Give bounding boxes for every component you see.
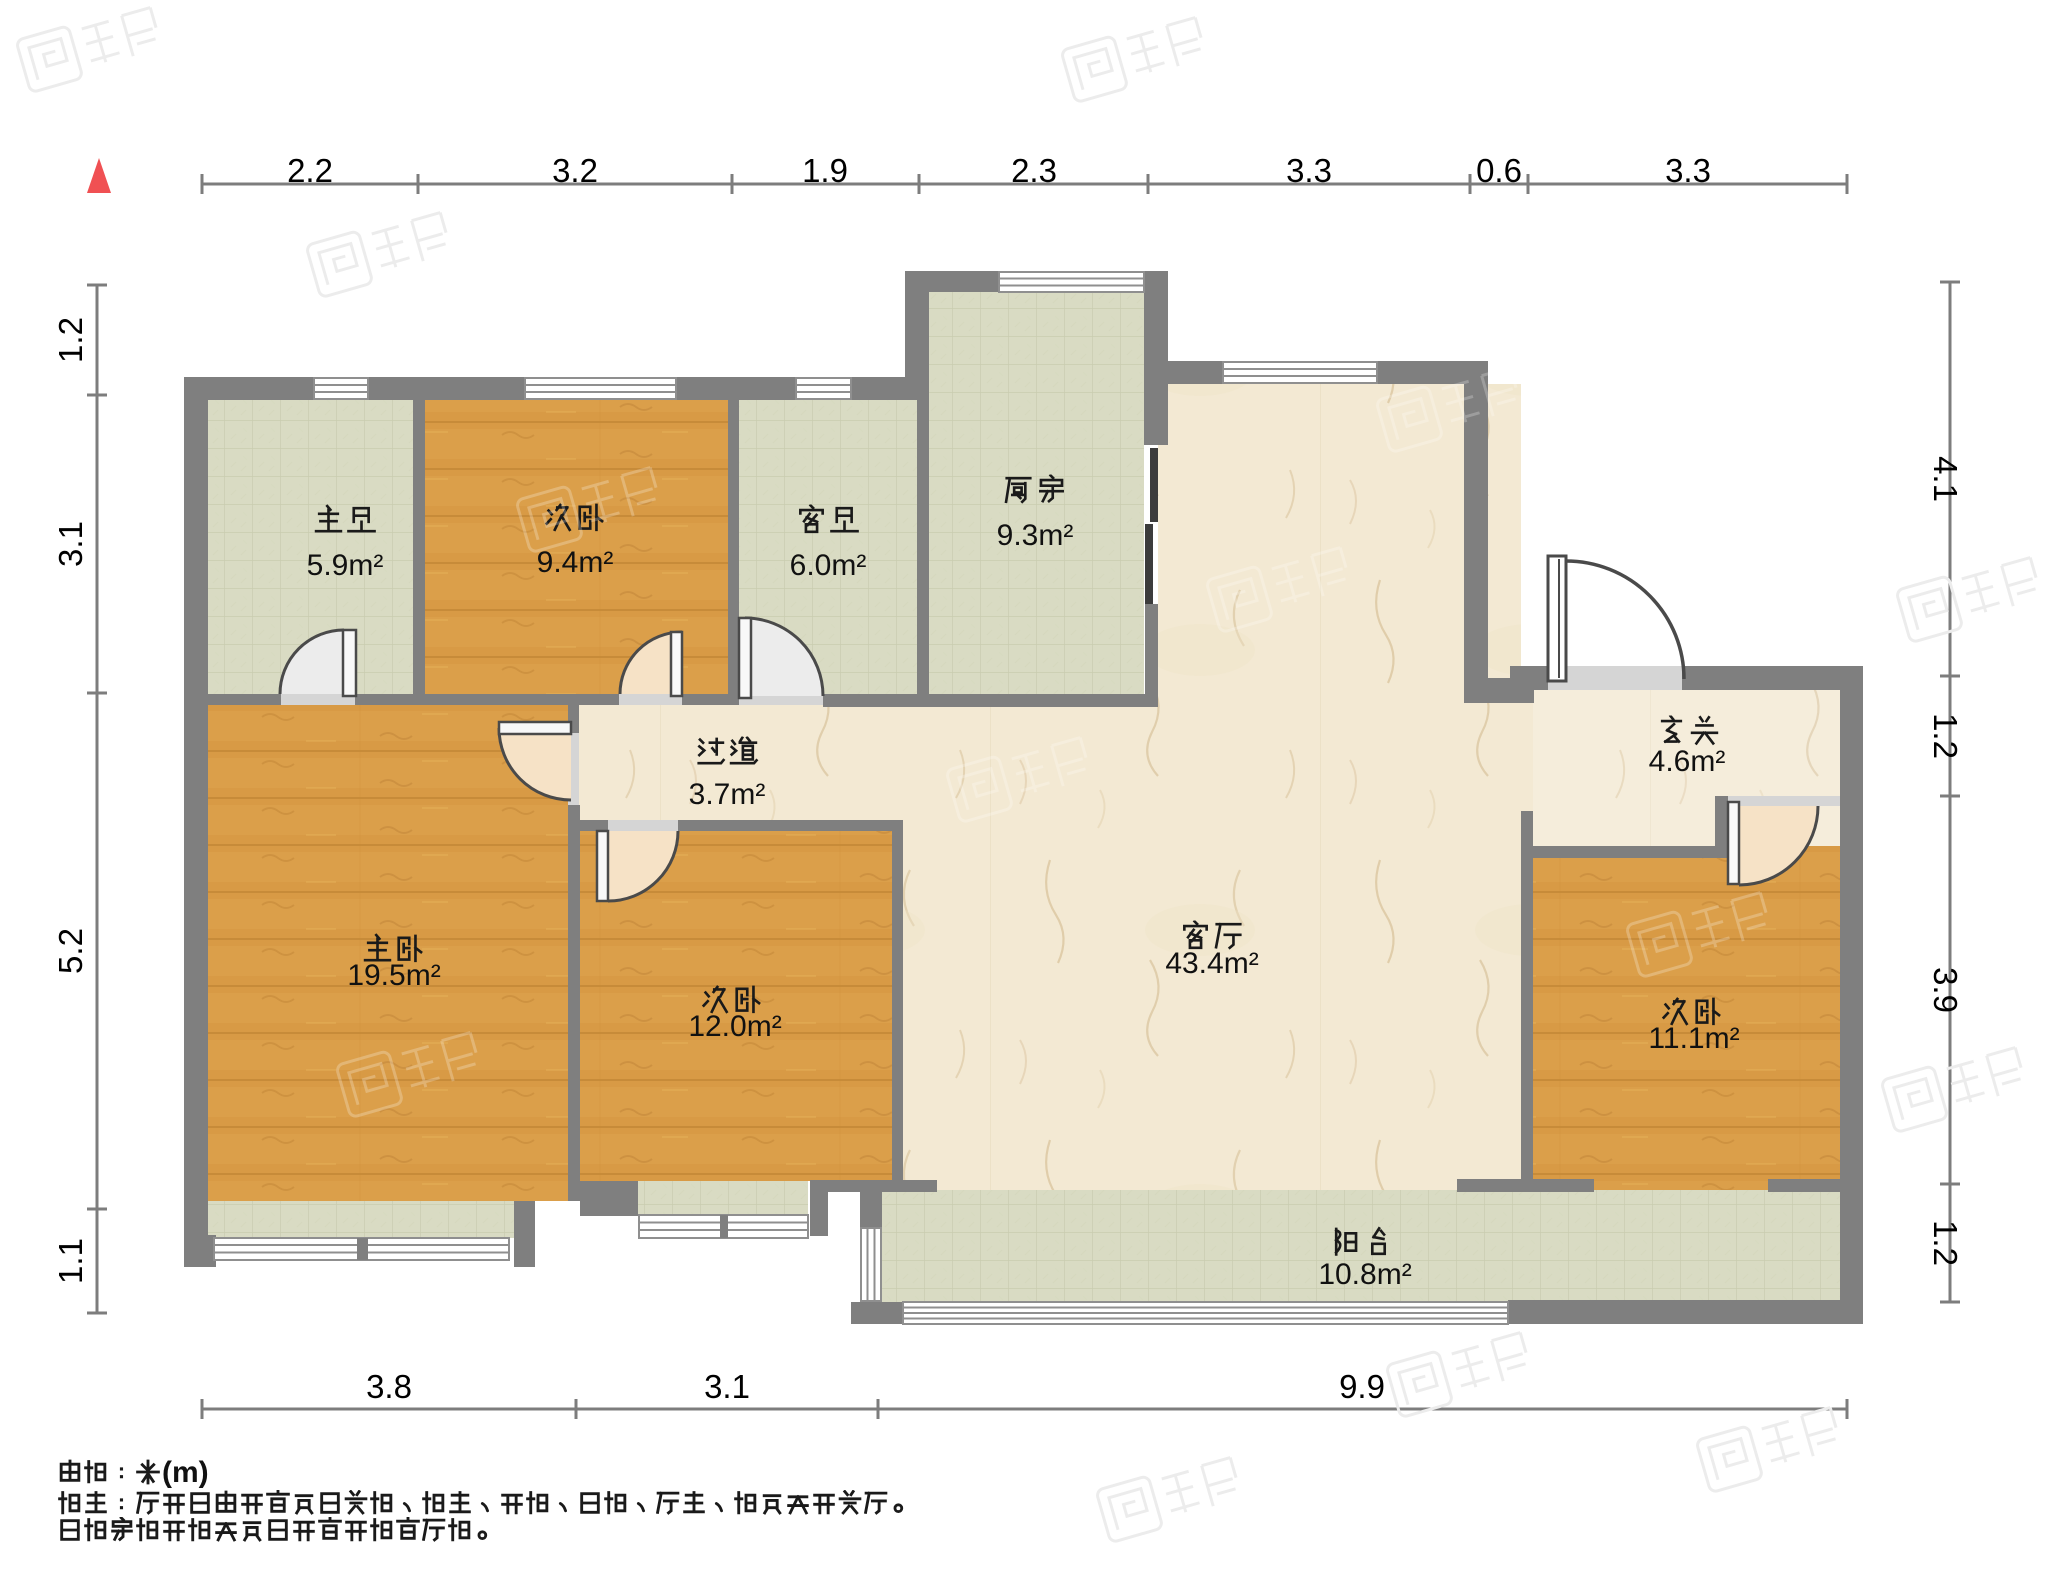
svg-text:2.3: 2.3	[1011, 152, 1057, 189]
svg-text:3.7m²: 3.7m²	[689, 778, 766, 811]
svg-text:1.2: 1.2	[1927, 1220, 1964, 1266]
svg-text:3.9: 3.9	[1927, 967, 1964, 1013]
svg-text:4.1: 4.1	[1927, 456, 1964, 502]
svg-text:2.2: 2.2	[287, 152, 333, 189]
svg-text:0.6: 0.6	[1476, 152, 1522, 189]
svg-text:3.1: 3.1	[52, 521, 89, 567]
svg-text:6.0m²: 6.0m²	[790, 549, 867, 582]
svg-text:3.3: 3.3	[1286, 152, 1332, 189]
svg-text:3.3: 3.3	[1665, 152, 1711, 189]
svg-text:1.2: 1.2	[52, 317, 89, 363]
svg-text:9.3m²: 9.3m²	[997, 519, 1074, 552]
svg-text:12.0m²: 12.0m²	[688, 1010, 781, 1043]
svg-text:3.8: 3.8	[366, 1368, 412, 1405]
svg-text:10.8m²: 10.8m²	[1318, 1258, 1411, 1291]
svg-text:(m): (m)	[162, 1456, 209, 1489]
svg-text:5.2: 5.2	[52, 928, 89, 974]
svg-text:9.9: 9.9	[1339, 1368, 1385, 1405]
svg-text:1.2: 1.2	[1927, 713, 1964, 759]
svg-text:9.4m²: 9.4m²	[537, 546, 614, 579]
svg-text:1.9: 1.9	[802, 152, 848, 189]
svg-text:3.1: 3.1	[704, 1368, 750, 1405]
svg-text:43.4m²: 43.4m²	[1165, 947, 1258, 980]
svg-text:3.2: 3.2	[552, 152, 598, 189]
svg-text:5.9m²: 5.9m²	[307, 549, 384, 582]
svg-text:19.5m²: 19.5m²	[347, 959, 440, 992]
svg-text:11.1m²: 11.1m²	[1648, 1022, 1739, 1055]
svg-text:4.6m²: 4.6m²	[1649, 745, 1726, 778]
svg-text:1.1: 1.1	[52, 1238, 89, 1284]
